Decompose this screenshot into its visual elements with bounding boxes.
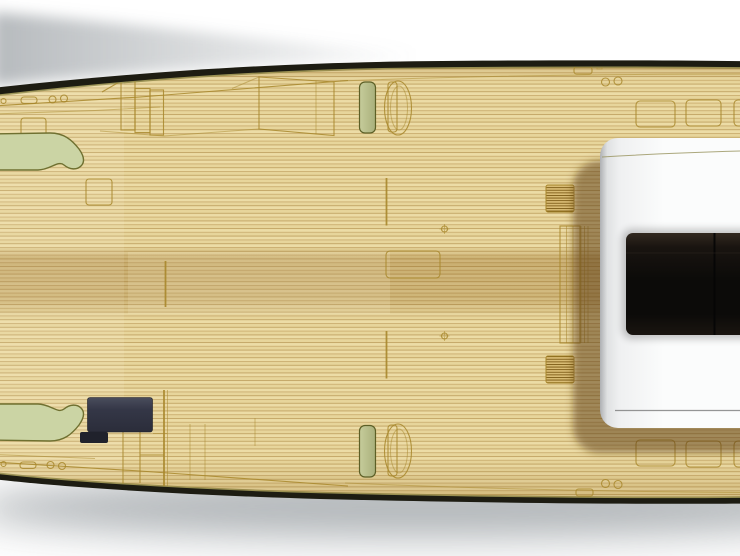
deck-vent-grill-starboard (546, 356, 574, 383)
deck-locker-step (80, 432, 108, 443)
coachroof (600, 138, 740, 428)
bollard-vent-port (360, 82, 376, 133)
bollard-vent-starboard (360, 426, 376, 478)
render-canvas (0, 0, 740, 556)
deck-locker-box (88, 398, 153, 433)
windscreen (626, 233, 740, 335)
deck-vent-grill-port (546, 185, 574, 212)
yacht-deck-plan (0, 0, 740, 556)
